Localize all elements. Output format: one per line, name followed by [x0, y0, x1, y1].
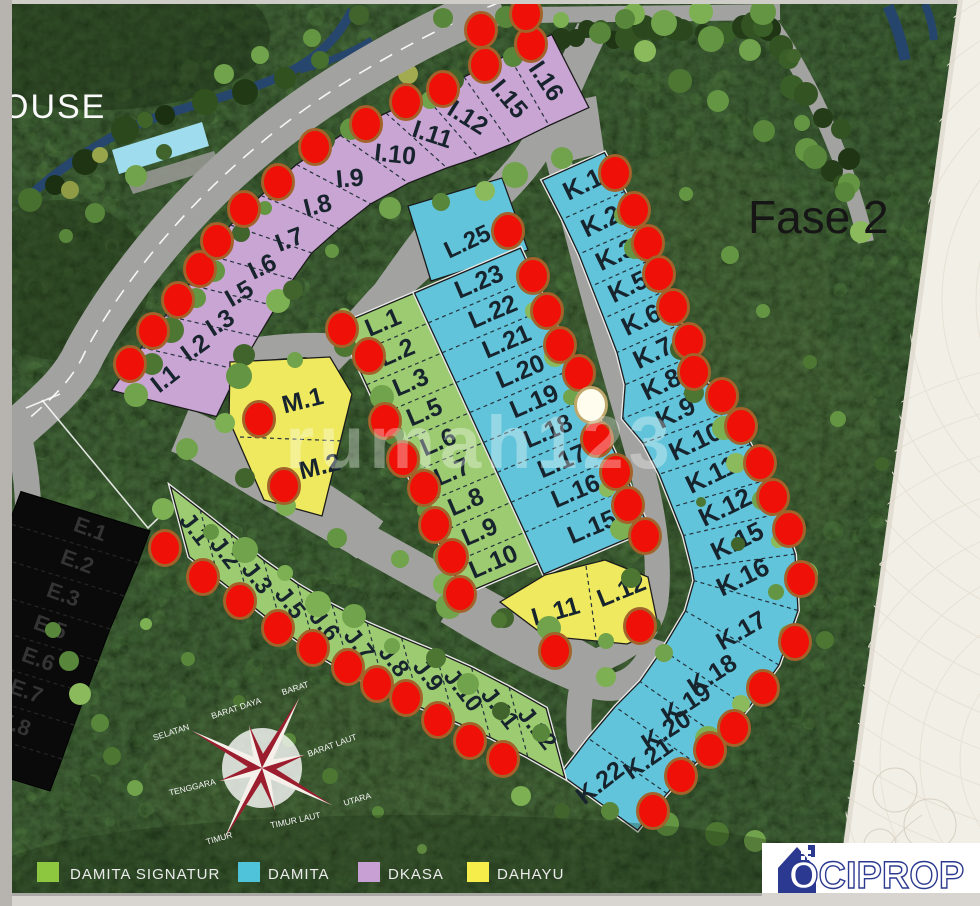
svg-text:DKASA: DKASA — [388, 866, 444, 883]
svg-text:Fase 2: Fase 2 — [748, 191, 889, 243]
svg-text:DAMITA: DAMITA — [268, 866, 330, 883]
svg-text:DAHAYU: DAHAYU — [497, 866, 564, 883]
svg-text:I.9: I.9 — [335, 163, 365, 193]
svg-text:rumah123: rumah123 — [285, 401, 675, 484]
svg-text:OCIPROP: OCIPROP — [789, 855, 964, 897]
svg-text:DAMITA SIGNATUR: DAMITA SIGNATUR — [70, 866, 220, 883]
svg-text:OUSE: OUSE — [2, 88, 106, 126]
svg-text:I.10: I.10 — [373, 139, 417, 171]
